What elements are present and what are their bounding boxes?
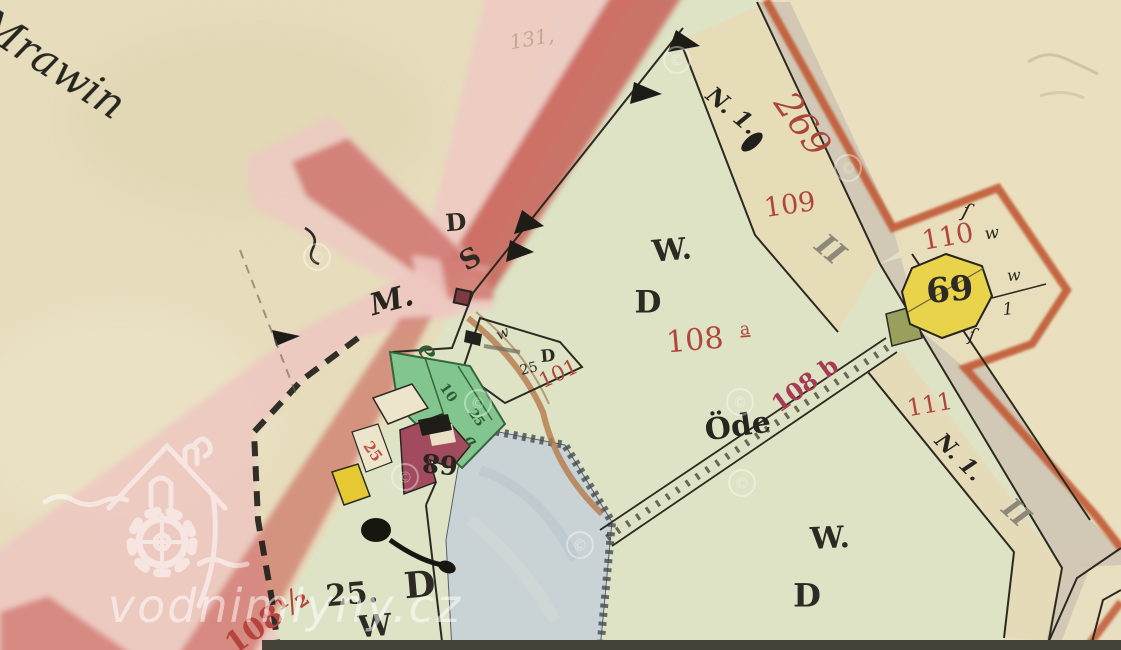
map-label-parcel-108: 108 (665, 321, 725, 361)
svg-text:©: © (841, 160, 856, 178)
map-label-cursive-w-east: w (1006, 265, 1022, 285)
scan-edge-strip (262, 640, 1121, 650)
map-canvas: m Mrawin131,DSM.w25D101W.D108a109269N. 1… (0, 0, 1121, 650)
watermark-site-label: vodnimlyny.cz (108, 579, 462, 633)
svg-text:©: © (310, 249, 325, 267)
road-junction-marker (454, 289, 472, 306)
map-label-house-68: 68 (421, 446, 460, 479)
svg-text:©: © (735, 475, 750, 493)
map-label-bottom-right-d: D (793, 577, 821, 615)
svg-text:©: © (471, 395, 486, 413)
svg-text:©: © (573, 537, 588, 555)
map-label-bottom-right-w: W. (808, 520, 850, 557)
svg-text:©: © (398, 469, 413, 487)
map-label-cursive-one: 1 (1002, 299, 1015, 320)
svg-text:©: © (733, 394, 748, 412)
pond-ink-blob (361, 518, 391, 542)
map-label-field-letter-w: W. (650, 231, 693, 269)
svg-text:©: © (670, 52, 685, 70)
historical-cadastral-map: m Mrawin131,DSM.w25D101W.D108a109269N. 1… (0, 0, 1121, 650)
map-label-road-letter-d: D (444, 207, 467, 238)
map-label-field-letter-d: D (635, 285, 662, 321)
map-label-house-69: 69 (925, 268, 976, 312)
map-label-parcel-108-sub-a: a (739, 319, 751, 340)
